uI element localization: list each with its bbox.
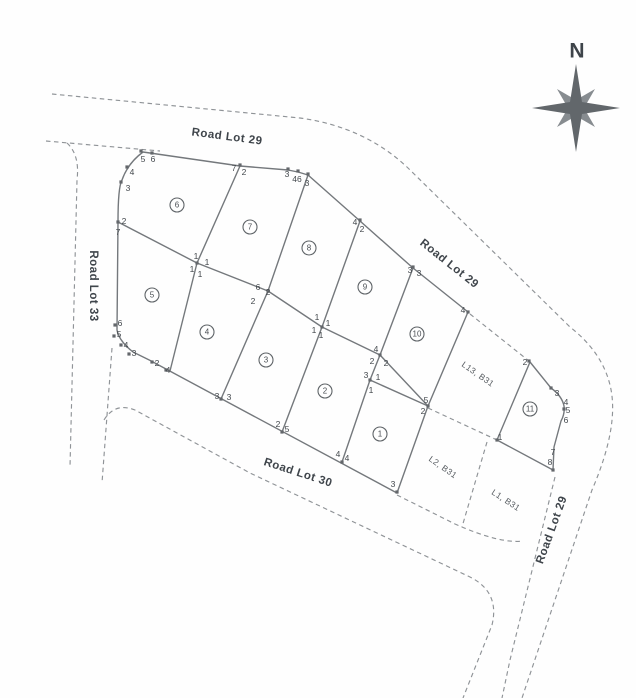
survey-point [113, 323, 116, 326]
vertex-label: 1 [369, 385, 374, 395]
vertex-label: 1 [376, 372, 381, 382]
vertex-label: 4 [130, 167, 135, 177]
vertex-label: 4 [336, 449, 341, 459]
vertex-label: 5 [285, 424, 290, 434]
vertex-label: 7 [116, 227, 121, 237]
vertex-label: 1 [312, 325, 317, 335]
vertex-label: 4 [166, 365, 171, 375]
lot-l2-l1-divider [462, 442, 487, 527]
vertex-label: 2 [384, 358, 389, 368]
lot-number: 6 [170, 198, 184, 212]
survey-point [378, 353, 381, 356]
road-label: Road Lot 29 [534, 494, 570, 565]
area-labels: L13, B31L2, B31L1, B31 [427, 359, 522, 513]
vertex-label: 2 [251, 296, 256, 306]
survey-point [119, 343, 122, 346]
road29-west-edge-lower [502, 477, 555, 698]
vertex-label: 7 [232, 163, 237, 173]
vertex-label: 1 [498, 432, 503, 442]
survey-point [320, 325, 323, 328]
vertex-label: 4 [374, 344, 379, 354]
vertex-label: 4 [461, 305, 466, 315]
vertex-label: 3 [215, 391, 220, 401]
lot-number-text: 1 [378, 430, 383, 439]
road-edge-left-east-lower [102, 348, 112, 483]
lot-number: 8 [302, 241, 316, 255]
vertex-label: 1 [190, 264, 195, 274]
vertex-label: 3 [417, 268, 422, 278]
vertex-label: 1 [315, 312, 320, 322]
area-label: L1, B31 [490, 487, 522, 513]
vertex-label: 5 [117, 329, 122, 339]
survey-point [340, 460, 343, 463]
lot-l2-north-edge [428, 408, 497, 440]
vertex-label: 5 [566, 405, 571, 415]
vertex-label: 3 [391, 479, 396, 489]
vertex-label: 2 [155, 358, 160, 368]
compass-main-star [532, 64, 620, 152]
vertex-label: 46 [292, 174, 302, 184]
road-label: Road Lot 33 [87, 250, 99, 321]
vertex-label: 6 [151, 154, 156, 164]
road-edge-top-northeast-east [52, 94, 613, 698]
vertex-label: 1 [194, 251, 199, 261]
vertex-label: 4 [124, 340, 129, 350]
lot-number-text: 9 [363, 283, 368, 292]
lot-number-text: 4 [205, 328, 210, 337]
vertex-label: 6 [118, 318, 123, 328]
lot-number: 3 [259, 353, 273, 367]
page-background: 5643277234634233411116221111422311526543… [0, 0, 636, 698]
lot-numbers: 6789105432111 [145, 198, 537, 441]
vertex-label: 4 [345, 453, 350, 463]
lot-number-text: 8 [307, 244, 312, 253]
vertex-label: 3 [305, 178, 310, 188]
vertex-label: 2 [122, 216, 127, 226]
divider-lot7-lot8 [221, 175, 308, 399]
road-label: Road Lot 29 [417, 237, 480, 291]
vertex-label: 6 [564, 415, 569, 425]
lot-number-text: 3 [264, 356, 269, 365]
survey-point [527, 359, 530, 362]
survey-point [306, 172, 309, 175]
vertex-label: 5 [424, 395, 429, 405]
survey-point [368, 378, 371, 381]
area-label: L13, B31 [460, 359, 496, 389]
compass-north-label: N [569, 40, 584, 63]
survey-plat-map: 5643277234634233411116221111422311526543… [0, 0, 636, 698]
survey-point [125, 165, 128, 168]
lot-number: 7 [243, 220, 257, 234]
vertex-label: 3 [132, 348, 137, 358]
vertex-label: 1 [319, 330, 324, 340]
lot-number: 10 [410, 327, 424, 341]
lot-number-text: 10 [413, 330, 422, 339]
survey-point [119, 180, 122, 183]
vertex-label: 3 [408, 265, 413, 275]
vertex-label: 3 [227, 392, 232, 402]
vertex-label: 4 [353, 217, 358, 227]
divider-lot6-lot7 [170, 166, 240, 371]
road-label: Road Lot 29 [191, 126, 263, 147]
lot-number-text: 2 [323, 387, 328, 396]
survey-point [296, 169, 299, 172]
vertex-label: 6 [256, 282, 261, 292]
survey-point [549, 386, 552, 389]
survey-point [150, 360, 153, 363]
survey-point [395, 490, 398, 493]
road-edge-top-inner [46, 141, 160, 151]
vertex-label: 2 [276, 419, 281, 429]
vertex-label: 2 [266, 287, 271, 297]
vertex-label: 1 [326, 318, 331, 328]
lot-number: 2 [318, 384, 332, 398]
vertex-label: 3 [364, 370, 369, 380]
area-label: L2, B31 [427, 454, 459, 481]
vertex-label: 7 [551, 447, 556, 457]
lot-l13-northeast-edge [470, 314, 529, 361]
survey-point [195, 261, 198, 264]
vertex-label: 3 [555, 388, 560, 398]
vertex-label: 1 [198, 269, 203, 279]
lot-number: 9 [358, 280, 372, 294]
survey-point [466, 310, 469, 313]
vertex-label: 3 [126, 183, 131, 193]
survey-point [280, 430, 283, 433]
survey-point [139, 149, 142, 152]
survey-point [358, 218, 361, 221]
subdivision-outer-boundary [117, 152, 468, 493]
survey-point [219, 397, 222, 400]
lot-number-text: 11 [526, 405, 535, 414]
vertex-label: 2 [242, 167, 247, 177]
lot-number: 5 [145, 288, 159, 302]
compass-rose: N [532, 40, 620, 153]
survey-point [112, 334, 115, 337]
survey-point [127, 352, 130, 355]
vertex-label: 2 [370, 356, 375, 366]
road-edge-left-west [67, 143, 78, 467]
survey-point [116, 220, 119, 223]
vertex-label: 2 [421, 406, 426, 416]
vertex-label: 5 [141, 154, 146, 164]
road-edge-bottom-south [104, 408, 494, 698]
road-label: Road Lot 30 [262, 456, 334, 489]
vertex-label: 3 [285, 169, 290, 179]
lot-number-text: 5 [150, 291, 155, 300]
vertex-label: 8 [548, 457, 553, 467]
vertex-label: 1 [205, 257, 210, 267]
lot-number-text: 6 [175, 201, 180, 210]
vertex-label: 2 [523, 357, 528, 367]
lot-number: 4 [200, 325, 214, 339]
lot1-north-edge [370, 380, 428, 406]
vertex-label: 2 [360, 224, 365, 234]
survey-point [551, 468, 554, 471]
lot-number-text: 7 [248, 223, 253, 232]
lot-number: 1 [373, 427, 387, 441]
lot-number: 11 [523, 402, 537, 416]
